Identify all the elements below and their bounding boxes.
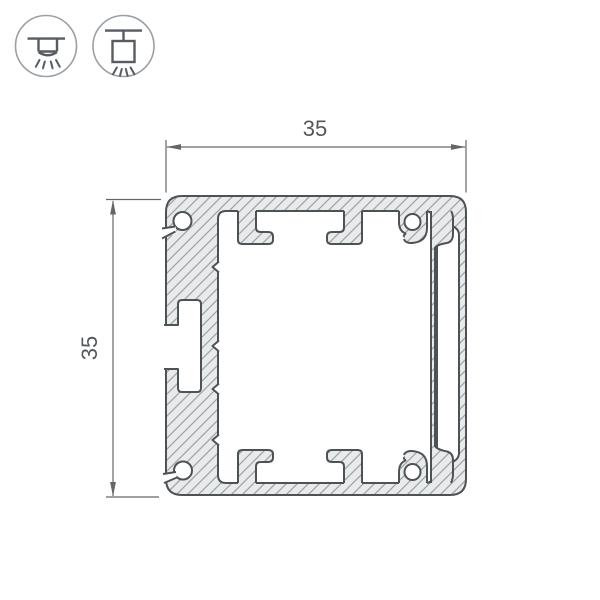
inner-cavity [218, 211, 433, 483]
extension-lines [106, 200, 161, 498]
right-channel [437, 226, 459, 462]
arrowhead-left [167, 144, 182, 150]
arrowhead-right [451, 144, 466, 150]
top-dimension: 35 [166, 116, 466, 193]
screw-port-top-right [399, 206, 427, 243]
extension-lines [166, 140, 466, 193]
arrowhead-bottom [110, 482, 116, 497]
arrowhead-top [110, 200, 116, 215]
left-dimension-label: 35 [77, 336, 102, 360]
surface-mount-icon [16, 16, 77, 77]
icon-border [16, 16, 77, 77]
top-dimension-label: 35 [303, 116, 327, 141]
screw-hole [405, 214, 421, 230]
pendant-mount-icon [93, 16, 154, 77]
left-dimension: 35 [77, 200, 161, 498]
icon-border [93, 16, 154, 77]
profile-cross-section [160, 196, 466, 495]
screw-port-bottom-right [399, 451, 427, 488]
screw-hole [405, 464, 421, 480]
screw-hole [174, 212, 192, 230]
mount-icons [16, 16, 155, 77]
technical-drawing: 35 35 [0, 0, 600, 600]
